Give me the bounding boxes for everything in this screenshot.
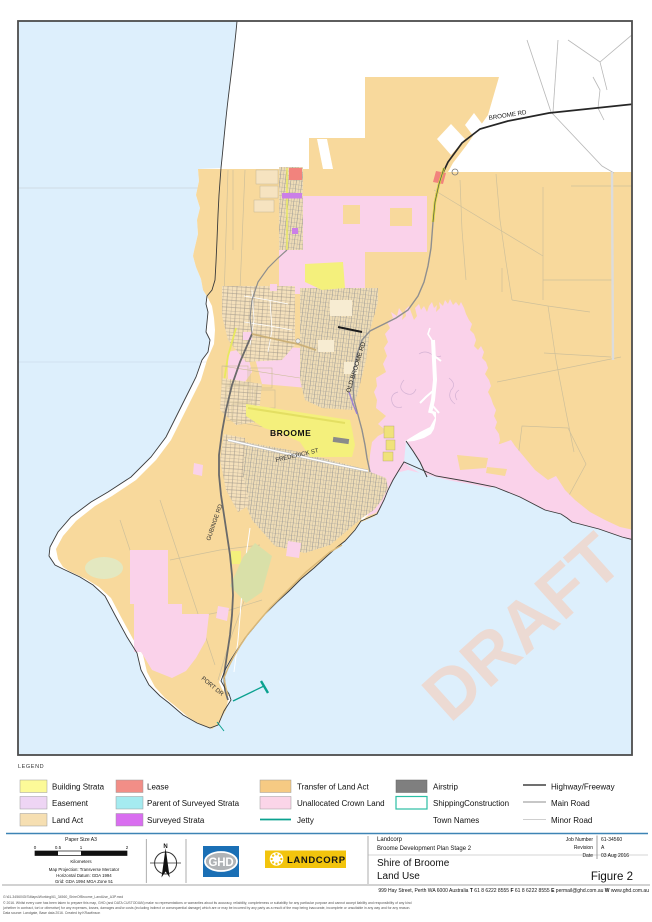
svg-text:Airstrip: Airstrip [433, 783, 458, 792]
svg-text:Lease: Lease [147, 783, 169, 792]
svg-text:© 2016. Whilst every care has: © 2016. Whilst every care has been taken… [3, 901, 412, 905]
svg-text:Figure 2: Figure 2 [591, 871, 633, 883]
svg-text:Minor Road: Minor Road [551, 816, 592, 825]
svg-text:Main Road: Main Road [551, 799, 590, 808]
svg-text:Paper Size A3: Paper Size A3 [65, 837, 97, 843]
svg-text:Parent of Surveyed Strata: Parent of Surveyed Strata [147, 799, 240, 808]
svg-text:Surveyed Strata: Surveyed Strata [147, 816, 205, 825]
svg-text:Highway/Freeway: Highway/Freeway [551, 783, 615, 792]
svg-text:Shire of Broome: Shire of Broome [377, 858, 450, 869]
svg-text:Land Act: Land Act [52, 816, 84, 825]
svg-text:Easement: Easement [52, 799, 89, 808]
svg-text:Town Names: Town Names [433, 816, 479, 825]
svg-text:Landcorp: Landcorp [377, 837, 403, 843]
svg-text:Jetty: Jetty [297, 816, 314, 825]
svg-text:GHD: GHD [209, 857, 234, 869]
svg-text:Land Use: Land Use [377, 871, 420, 882]
svg-text:Job Number: Job Number [566, 837, 594, 843]
svg-text:03 Aug 2016: 03 Aug 2016 [601, 853, 629, 859]
svg-text:ShippingConstruction: ShippingConstruction [433, 799, 509, 808]
svg-text:Date: Date [582, 853, 593, 859]
svg-text:Map Projection: Transverse Mer: Map Projection: Transverse Mercator [49, 867, 120, 872]
svg-text:Revision: Revision [574, 845, 593, 851]
svg-text:BROOME: BROOME [270, 428, 311, 438]
svg-text:Broome Development Plan Stage: Broome Development Plan Stage 2 [377, 846, 472, 852]
svg-text:G:\61-34560\GIS\Maps\Working\6: G:\61-34560\GIS\Maps\Working\61_34560_Sh… [3, 895, 123, 899]
svg-text:Horizontal Datum: GDA 1994: Horizontal Datum: GDA 1994 [56, 873, 112, 878]
svg-text:Building Strata: Building Strata [52, 783, 105, 792]
svg-text:61-34560: 61-34560 [601, 837, 622, 843]
svg-text:Data source: Landgate, Base d: Data source: Landgate, Base data 2016. C… [3, 911, 100, 915]
svg-text:999 Hay Street, Perth WA 6000: 999 Hay Street, Perth WA 6000 Australia … [378, 888, 649, 894]
svg-text:LEGEND: LEGEND [18, 764, 44, 770]
svg-text:(whether in contract, tort or: (whether in contract, tort or otherwise)… [3, 906, 410, 910]
svg-text:Grid: GDA 1994 MGA Zone 51: Grid: GDA 1994 MGA Zone 51 [55, 879, 114, 884]
svg-text:LANDCORP: LANDCORP [287, 855, 346, 866]
svg-text:0.5: 0.5 [55, 845, 62, 850]
svg-text:Transfer of Land Act: Transfer of Land Act [297, 783, 370, 792]
svg-text:Kilometers: Kilometers [70, 859, 92, 864]
svg-text:Unallocated Crown Land: Unallocated Crown Land [297, 799, 385, 808]
